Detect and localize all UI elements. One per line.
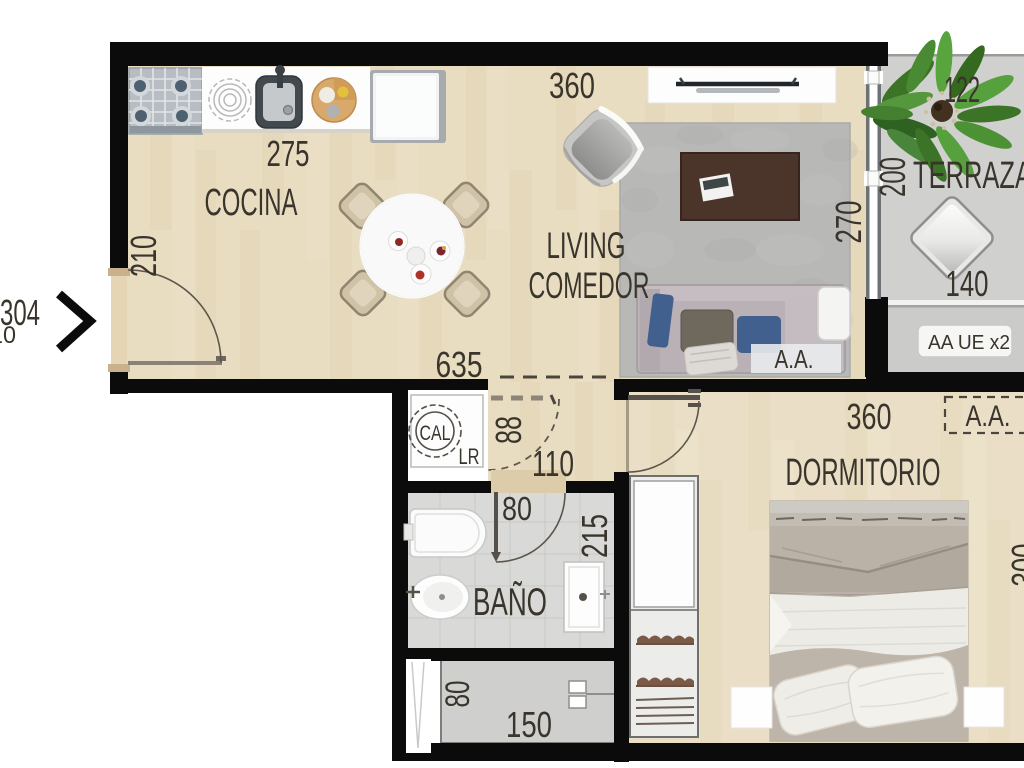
svg-text:DORMITORIO: DORMITORIO: [786, 452, 941, 494]
svg-text:AA UE x2: AA UE x2: [928, 332, 1010, 354]
svg-text:140: 140: [946, 263, 989, 304]
svg-text:CAL: CAL: [420, 422, 451, 445]
svg-text:360: 360: [549, 65, 595, 106]
svg-text:150: 150: [506, 704, 552, 745]
svg-text:BAÑO: BAÑO: [473, 581, 547, 624]
svg-text:A.A.: A.A.: [775, 344, 814, 374]
svg-text:210: 210: [123, 235, 164, 277]
svg-text:A.A.: A.A.: [966, 400, 1011, 433]
svg-text:TERRAZA: TERRAZA: [913, 155, 1024, 197]
svg-text:122: 122: [944, 69, 980, 110]
svg-text:300: 300: [1004, 544, 1024, 587]
svg-text:COCINA: COCINA: [205, 182, 298, 224]
svg-text:215: 215: [574, 514, 615, 558]
svg-text:LR: LR: [459, 444, 480, 469]
svg-text:360: 360: [847, 396, 892, 437]
svg-text:COMEDOR: COMEDOR: [529, 265, 650, 306]
svg-text:80: 80: [502, 490, 532, 527]
svg-text:10: 10: [0, 322, 16, 349]
svg-text:275: 275: [267, 133, 310, 174]
svg-text:LIVING: LIVING: [547, 225, 626, 266]
svg-text:88: 88: [488, 416, 529, 444]
svg-text:635: 635: [436, 344, 483, 385]
svg-text:80: 80: [439, 681, 477, 708]
svg-text:270: 270: [828, 201, 869, 244]
svg-text:200: 200: [872, 157, 913, 197]
svg-text:110: 110: [532, 443, 574, 484]
